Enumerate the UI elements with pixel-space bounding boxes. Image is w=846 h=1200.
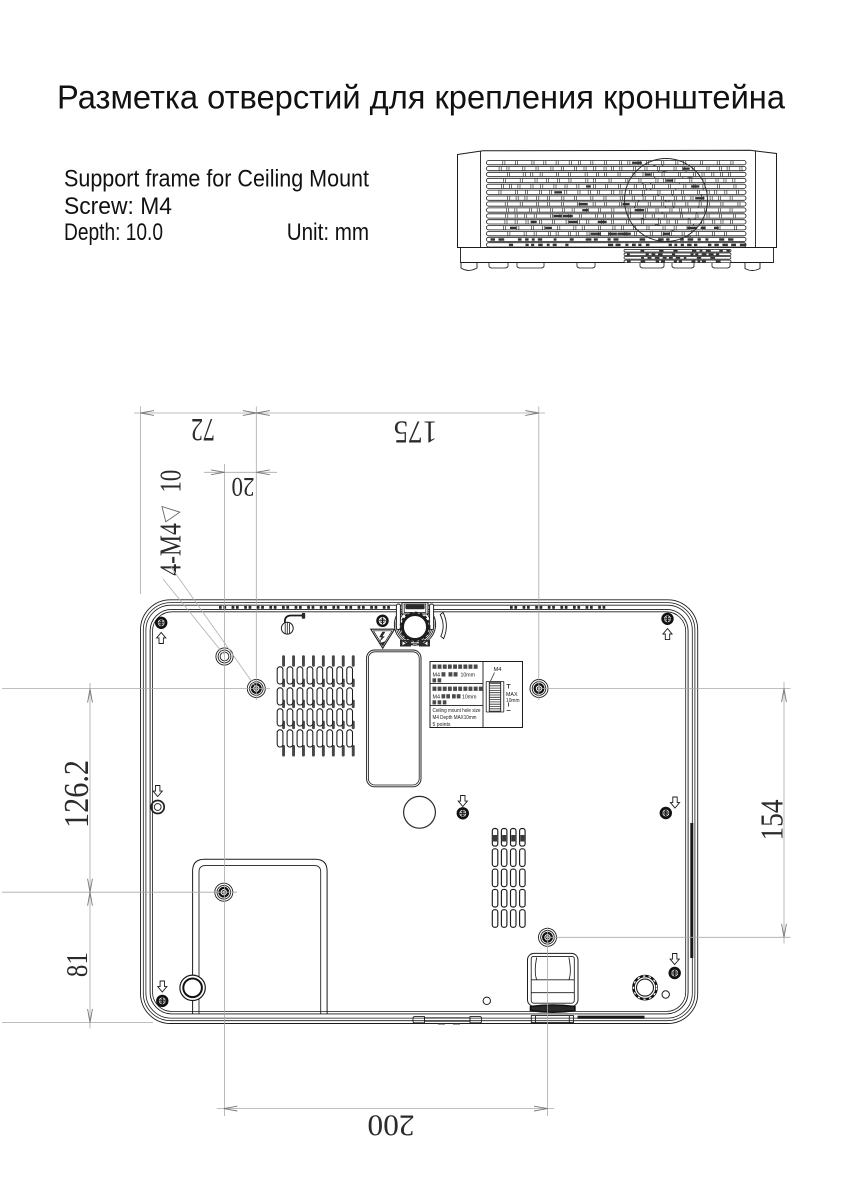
svg-text:10: 10 [154,470,188,493]
svg-text:10mm: 10mm [506,698,520,704]
svg-text:Ceiling mount hole size: Ceiling mount hole size [433,708,481,714]
svg-text:200: 200 [368,1108,415,1142]
svg-text:Depth: 10.0: Depth: 10.0 [64,219,163,246]
svg-text:20: 20 [232,471,255,502]
svg-text:Screw: M4: Screw: M4 [64,193,172,220]
svg-text:4-M4: 4-M4 [154,523,188,576]
svg-text:154: 154 [754,800,790,841]
svg-text:M4 Depth MAX10mm: M4 Depth MAX10mm [433,715,477,721]
svg-text:M4: M4 [433,672,441,678]
svg-text:72: 72 [191,411,215,447]
svg-text:Разметка отверстий для креплен: Разметка отверстий для крепления кронште… [57,79,786,116]
svg-text:10mm: 10mm [461,672,476,678]
svg-text:10mm: 10mm [462,694,477,700]
svg-text:M4: M4 [433,694,441,700]
svg-text:81: 81 [60,952,94,977]
svg-text:126.2: 126.2 [57,760,96,828]
svg-text:M4: M4 [494,667,503,673]
svg-text:175: 175 [394,415,438,450]
svg-text:Support frame for Ceiling Moun: Support frame for Ceiling Mount [64,166,369,193]
svg-text:5 points: 5 points [433,722,451,728]
svg-text:Unit: mm: Unit: mm [287,219,369,246]
